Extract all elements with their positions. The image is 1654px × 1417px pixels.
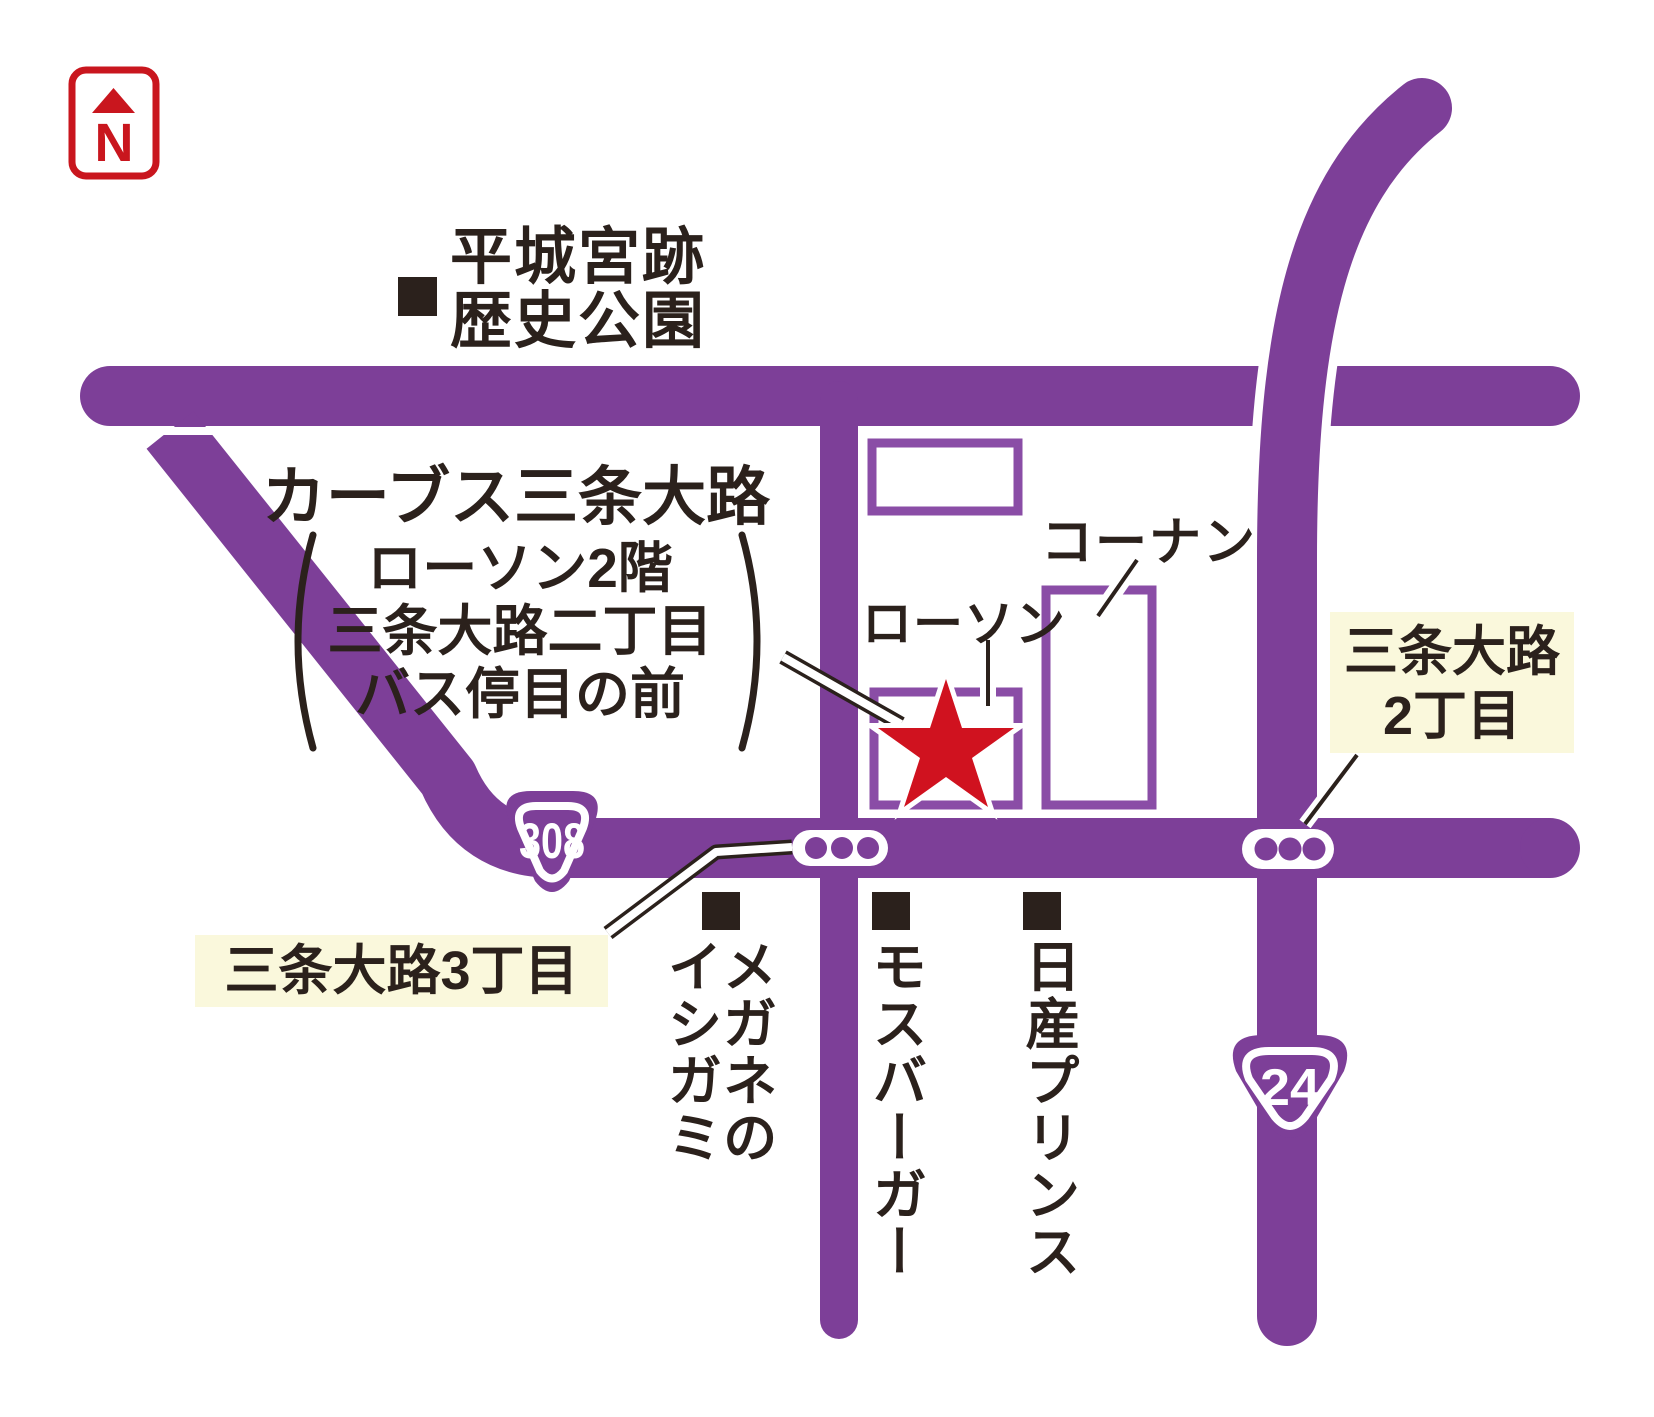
sanjo2-label-line2: 2丁目 xyxy=(1330,684,1574,748)
sanjo2-intersection-label: 三条大路 2丁目 xyxy=(1330,612,1574,753)
destination-title: カーブス三条大路 xyxy=(256,446,776,538)
sanjo2-label-line1: 三条大路 xyxy=(1330,620,1574,684)
nissan-marker xyxy=(1023,892,1061,930)
megane-ishigami-label: メガネの イシガミ xyxy=(660,938,772,1218)
nissan-prince-label: 日産プリンス xyxy=(1017,938,1075,1298)
destination-note-line1: ローソン2階 xyxy=(298,537,742,600)
north-letter: N xyxy=(88,112,140,174)
mos-burger-label: モスバーガー xyxy=(864,938,922,1298)
megane-marker xyxy=(702,892,740,930)
destination-note-line2: 三条大路二丁目 xyxy=(298,600,742,663)
lawson-label: ローソン xyxy=(862,584,1066,656)
sanjo3-intersection-label: 三条大路3丁目 xyxy=(195,935,608,1007)
route-24-number: 24 xyxy=(1260,1059,1320,1117)
park-label: 平城宮跡 歴史公園 xyxy=(450,226,706,354)
note-paren-right xyxy=(742,535,757,748)
road-gap-strip xyxy=(100,427,230,435)
route-308-number: 308 xyxy=(519,813,585,869)
traffic-signal-icon-2 xyxy=(1242,829,1334,869)
park-label-line1: 平城宮跡 xyxy=(450,226,706,290)
konan-label: コーナン xyxy=(1041,500,1257,575)
mos-burger-marker xyxy=(872,892,910,930)
traffic-signal-icon xyxy=(792,830,888,866)
park-label-line2: 歴史公園 xyxy=(450,290,706,354)
destination-note: ローソン2階 三条大路二丁目 バス停目の前 xyxy=(298,537,742,726)
destination-note-line3: バス停目の前 xyxy=(298,663,742,726)
access-map: 308 24 xyxy=(0,0,1654,1417)
park-marker xyxy=(398,277,437,316)
road-lower-end-cap xyxy=(1520,818,1580,878)
building-upper xyxy=(872,443,1018,511)
